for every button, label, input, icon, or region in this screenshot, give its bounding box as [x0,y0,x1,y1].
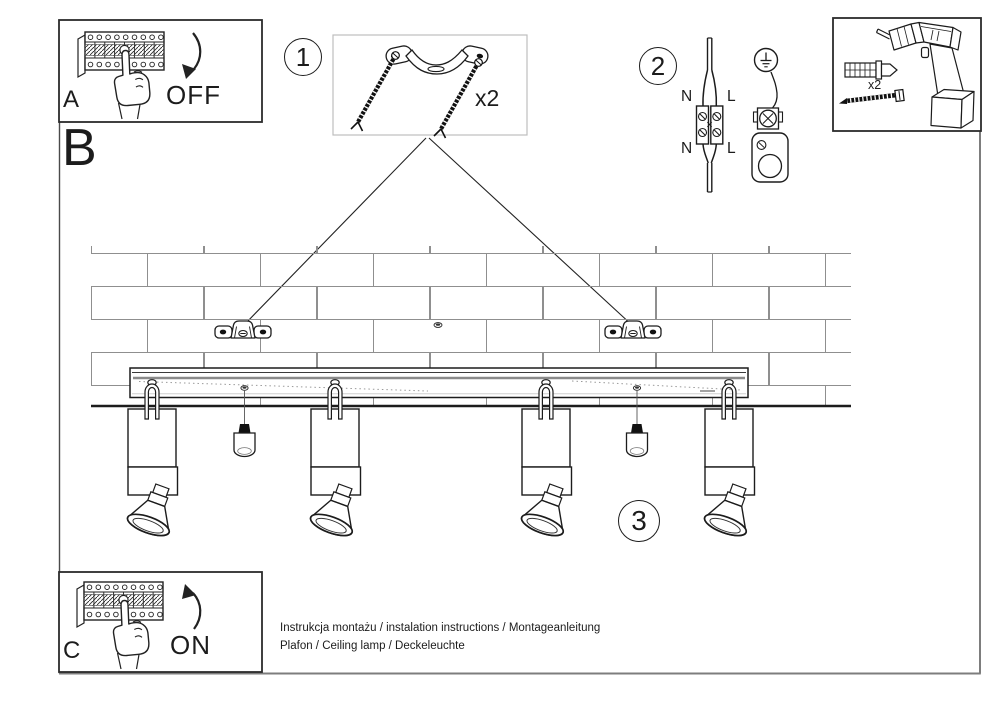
line-art-canvas [0,0,1000,707]
wall-drill-hole [434,323,442,328]
terminal-block-icon [697,38,723,192]
footer-product-line: Plafon / Ceiling lamp / Deckeleuchte [280,637,465,655]
plug-quantity: x2 [868,78,881,92]
section-c-label: C [63,637,80,665]
spotlight-2 [308,409,366,540]
instruction-sheet: A B C OFF ON 1 2 3 x2 x2 N L N L Instruk… [0,0,1000,707]
step-1-badge: 1 [284,38,322,76]
wall-plug-icon [845,61,897,79]
step-2-badge: 2 [639,47,677,85]
on-label: ON [170,630,211,661]
wire-l-top: L [727,88,736,106]
wire-l-bottom: L [727,140,736,158]
section-b-label: B [62,118,97,178]
wire-n-top: N [681,88,692,106]
off-label: OFF [166,80,221,111]
spotlight-1 [125,409,183,540]
step-3-badge: 3 [618,500,660,542]
footer-title-line: Instrukcja montażu / instalation instruc… [280,619,600,637]
wire-n-bottom: N [681,140,692,158]
section-a-label: A [63,86,79,114]
earth-ground-icon [755,49,778,72]
ceiling-bar-icon [130,368,748,398]
spotlight-3 [519,409,577,540]
ground-clamp-icon [752,72,788,182]
bracket-quantity: x2 [475,85,499,112]
spotlight-4 [702,409,760,540]
